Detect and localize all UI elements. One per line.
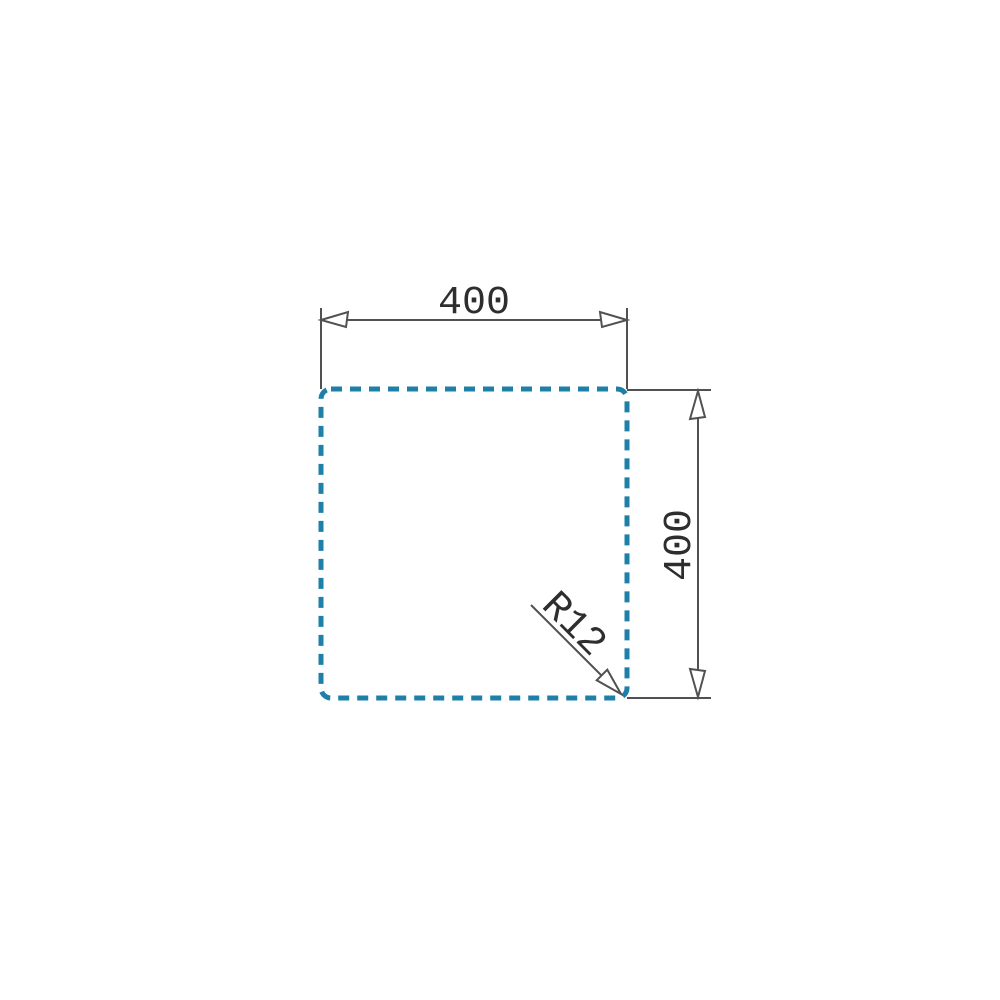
corner-radius-label: R12 bbox=[531, 584, 614, 667]
height-arrow-down-icon bbox=[690, 669, 705, 697]
dimension-linework bbox=[321, 308, 711, 698]
height-arrow-up-icon bbox=[690, 391, 705, 419]
technical-drawing: 400 400 R12 bbox=[0, 0, 1000, 1000]
height-dimension-label: 400 bbox=[658, 509, 703, 581]
width-arrow-right-icon bbox=[600, 312, 627, 327]
dimension-labels: 400 400 R12 bbox=[438, 281, 703, 667]
width-arrow-left-icon bbox=[321, 312, 348, 327]
drawing-canvas: 400 400 R12 bbox=[0, 0, 1000, 1000]
width-dimension-label: 400 bbox=[438, 281, 510, 326]
